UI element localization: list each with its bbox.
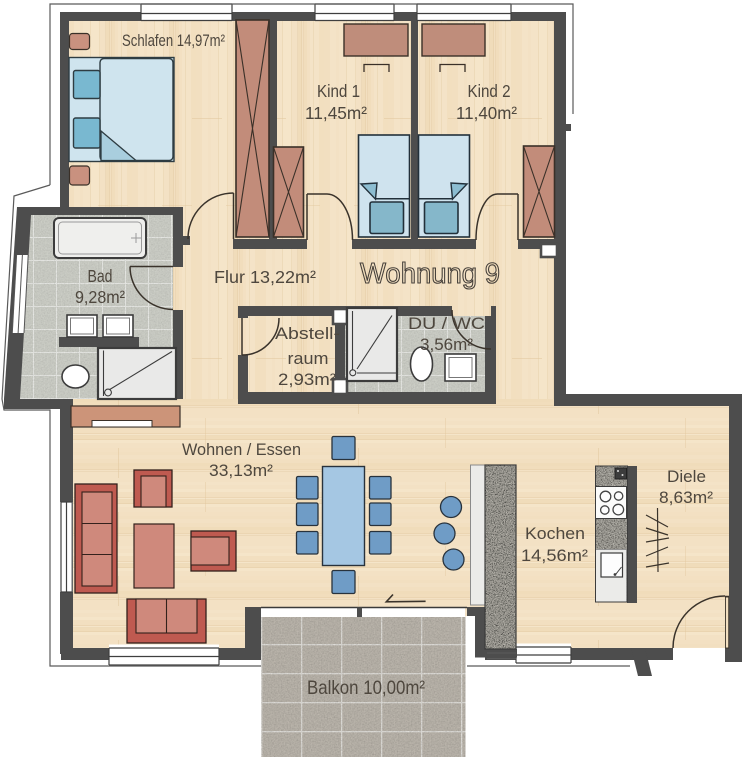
svg-text:Abstell-: Abstell- [275, 325, 340, 343]
svg-text:11,45m²: 11,45m² [305, 103, 367, 123]
svg-text:9,28m²: 9,28m² [75, 287, 125, 307]
svg-text:Wohnung 9: Wohnung 9 [360, 258, 500, 290]
svg-text:Schlafen 14,97m²: Schlafen 14,97m² [122, 31, 225, 50]
svg-text:3,56m²: 3,56m² [420, 336, 474, 354]
svg-text:33,13m²: 33,13m² [209, 461, 273, 480]
svg-text:Balkon 10,00m²: Balkon 10,00m² [307, 677, 425, 699]
svg-text:11,40m²: 11,40m² [456, 103, 517, 123]
svg-text:Flur 13,22m²: Flur 13,22m² [214, 267, 316, 287]
svg-text:2,93m²: 2,93m² [278, 371, 337, 389]
svg-text:Kind 1: Kind 1 [317, 81, 360, 101]
svg-text:raum: raum [288, 350, 329, 368]
svg-text:Kochen: Kochen [525, 524, 585, 543]
svg-text:8,63m²: 8,63m² [659, 488, 713, 507]
svg-text:DU / WC: DU / WC [408, 315, 485, 333]
svg-text:14,56m²: 14,56m² [521, 546, 588, 565]
svg-text:Diele: Diele [667, 467, 706, 486]
svg-text:Bad: Bad [88, 266, 113, 286]
svg-text:Kind 2: Kind 2 [468, 81, 511, 101]
svg-text:Wohnen / Essen: Wohnen / Essen [182, 440, 301, 459]
